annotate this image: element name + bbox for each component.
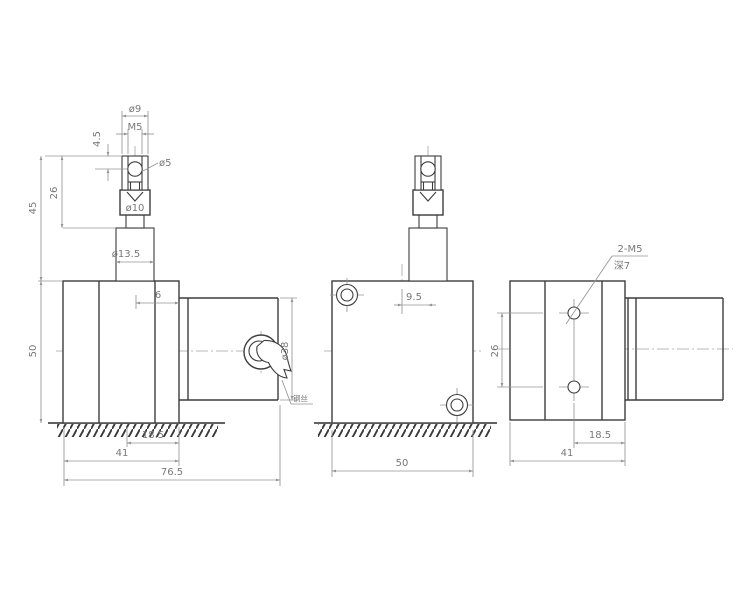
clevis-pin-hole [128,162,142,176]
dim-label-50-width: 50 [396,458,409,469]
stem-neck [126,215,144,228]
ground-hatch-left [57,424,218,437]
dim-label-dia10: ø10 [126,203,145,214]
dim-label-dia38: ø38 [280,342,291,361]
side-stem [409,156,447,281]
dim-label-26: 26 [49,187,60,200]
rear-body [510,281,625,420]
dim-label-9-5: 9.5 [406,292,422,303]
thread-hole-top [568,307,580,319]
dim-label-rear-18-5: 18.5 [589,430,611,441]
dim-label-18-5: 18.5 [142,430,164,441]
ground-hatch-middle [318,424,491,437]
drawing-page: ø9 M5 4.5 ø5 ø10 ø13.5 45 [0,0,750,600]
rear-view: 2-M5 深7 26 18.5 41 [490,244,733,466]
hole-top-left [337,285,358,306]
dim-label-76-5: 76.5 [161,467,183,478]
ground-left [48,423,225,437]
front-drum [179,298,291,400]
dim-label-6: 6 [155,290,161,301]
front-body [63,281,179,423]
dim-label-4-5: 4.5 [92,131,103,147]
dim-label-rear-41: 41 [561,448,574,459]
dim-label-m5: M5 [128,122,143,133]
front-view: ø9 M5 4.5 ø5 ø10 ø13.5 45 [28,104,313,486]
dim-label-dia5: ø5 [159,158,171,169]
ground-middle [314,423,497,437]
note-depth: 深7 [614,260,630,272]
dim-label-50-height: 50 [28,345,39,358]
dim-label-dia13-5: ø13.5 [112,249,140,260]
note-wire: 钢丝 [293,393,308,403]
dim-label-45: 45 [28,202,39,215]
technical-drawing: ø9 M5 4.5 ø5 ø10 ø13.5 45 [0,0,750,600]
note-thread: 2-M5 [618,244,643,255]
hole-bottom-right [447,395,468,416]
dim-label-41: 41 [116,448,129,459]
dim-label-rear-26: 26 [490,345,501,358]
side-view: 9.5 50 [314,146,497,477]
thread-hole-bottom [568,381,580,393]
dim-label-dia9: ø9 [129,104,141,115]
